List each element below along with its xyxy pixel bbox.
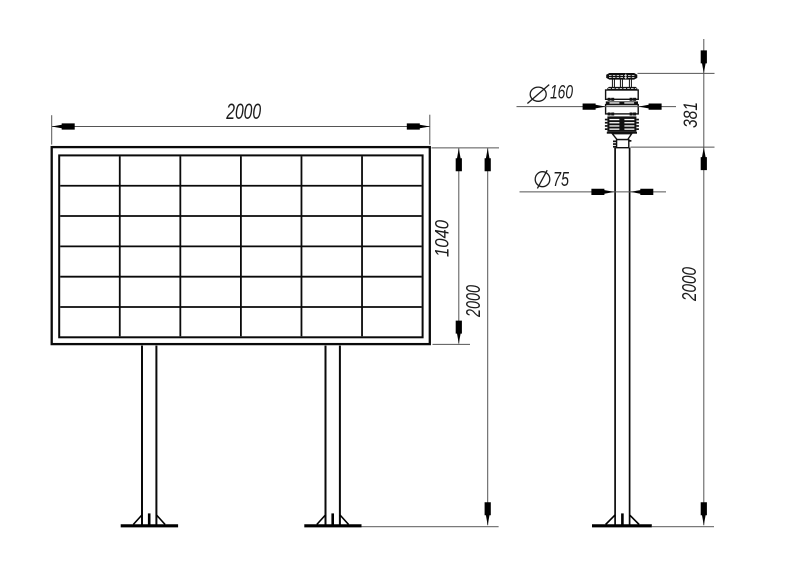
svg-text:1040: 1040: [433, 220, 454, 257]
svg-text:2000: 2000: [225, 99, 261, 124]
svg-text:2000: 2000: [463, 285, 485, 318]
svg-text:160: 160: [550, 83, 573, 104]
svg-text:2000: 2000: [679, 267, 701, 302]
svg-text:381: 381: [681, 102, 702, 128]
svg-text:75: 75: [553, 169, 570, 191]
